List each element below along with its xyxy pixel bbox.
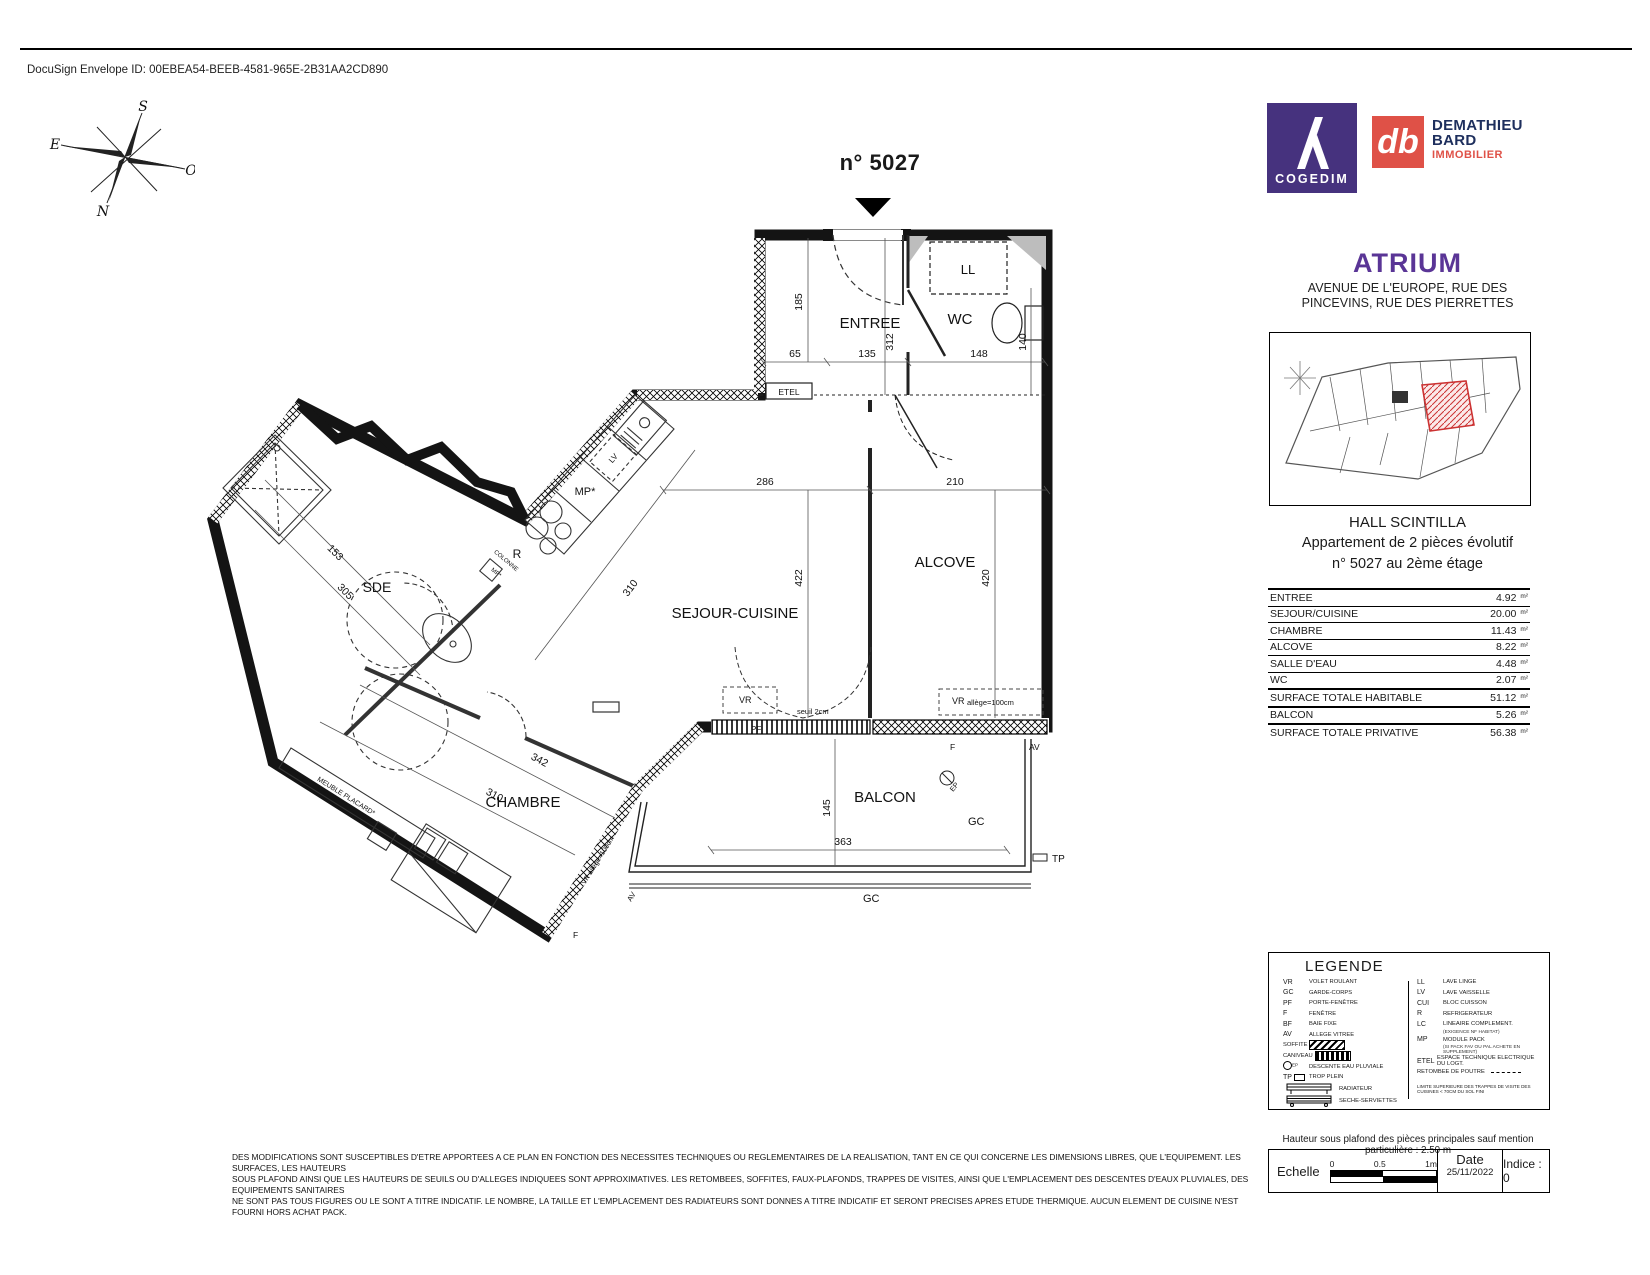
svg-text:allège=100cm: allège=100cm (967, 698, 1014, 707)
svg-text:363: 363 (834, 836, 852, 848)
key-plan (1269, 332, 1531, 506)
table-row-total-habitable: SURFACE TOTALE HABITABLE51.12m² (1268, 688, 1530, 706)
address-line-2: PINCEVINS, RUE DES PIERRETTES (1265, 296, 1550, 311)
echelle-label: Echelle (1277, 1164, 1320, 1179)
compass-o: O (185, 163, 195, 179)
disclaimer-line-2: SOUS PLAFOND AINSI QUE LES HAUTEURS DE S… (232, 1174, 1254, 1196)
room-label-balcon: BALCON (854, 789, 916, 806)
room-label-sde: SDE (363, 579, 392, 595)
echelle-cell: Echelle 0 0.5 1m (1269, 1150, 1438, 1192)
soffite-swatch (1309, 1040, 1345, 1050)
legend-title: LEGENDE (1305, 958, 1549, 975)
room-label-sejour: SEJOUR-CUISINE (672, 605, 799, 622)
svg-text:148: 148 (970, 348, 988, 360)
project-name: ATRIUM (1265, 248, 1550, 279)
svg-text:312: 312 (884, 333, 896, 351)
svg-text:VR: VR (739, 695, 752, 705)
scale-bar: 0 0.5 1m (1330, 1159, 1437, 1183)
table-row: ALCOVE8.22m² (1268, 639, 1530, 656)
plan-number: n° 5027 (795, 150, 965, 176)
demathieu-bard-logo: DEMATHIEU BARD IMMOBILIER (1432, 118, 1523, 163)
svg-text:65: 65 (789, 348, 801, 360)
room-label-entree: ENTREE (840, 315, 901, 332)
keyplan-building (1286, 357, 1520, 479)
address-line-1: AVENUE DE L'EUROPE, RUE DES (1265, 281, 1550, 296)
svg-text:422: 422 (793, 569, 805, 587)
table-row: CHAMBRE11.43m² (1268, 622, 1530, 639)
disclaimer-line-3: NE SONT PAS TOUS FIGURES OU LE SONT A TI… (232, 1196, 1254, 1218)
hall-name: HALL SCINTILLA (1265, 514, 1550, 531)
compass-rose: S E O N (45, 95, 195, 220)
table-row: ENTREE4.92m² (1268, 588, 1530, 606)
svg-text:210: 210 (946, 476, 964, 488)
svg-text:seuil 2cm: seuil 2cm (797, 707, 829, 716)
table-row-total-privative: SURFACE TOTALE PRIVATIVE56.38m² (1268, 723, 1530, 741)
radiateur-symbol (1283, 1083, 1335, 1095)
svg-text:F: F (950, 742, 955, 752)
seche-serviettes-symbol (1283, 1095, 1335, 1107)
table-row: BALCON5.26m² (1268, 706, 1530, 724)
svg-text:AV: AV (625, 890, 638, 903)
docusign-envelope-id: DocuSign Envelope ID: 00EBEA54-BEEB-4581… (27, 64, 388, 76)
surface-table: ENTREE4.92m² SEJOUR/CUISINE20.00m² CHAMB… (1268, 588, 1530, 741)
legend-divider (1408, 981, 1409, 1099)
svg-text:AV: AV (1029, 742, 1040, 752)
entrance-marker-triangle (855, 198, 891, 217)
footer-disclaimer: DES MODIFICATIONS SONT SUSCEPTIBLES D'ET… (232, 1152, 1254, 1218)
svg-text:135: 135 (858, 348, 876, 360)
svg-text:286: 286 (756, 476, 774, 488)
indice-cell: Indice : 0 (1503, 1150, 1549, 1192)
compass-n: N (96, 204, 110, 220)
disclaimer-line-1: DES MODIFICATIONS SONT SUSCEPTIBLES D'ET… (232, 1152, 1254, 1174)
label-etel: ETEL (778, 387, 800, 397)
svg-text:140: 140 (1017, 333, 1029, 351)
svg-text:VR: VR (952, 696, 965, 706)
page-top-border (20, 48, 1632, 50)
legend-right-column: LLLAVE LINGE LVLAVE VAISSELLE CUIBLOC CU… (1407, 977, 1547, 1107)
apartment-desc-2: n° 5027 au 2ème étage (1265, 556, 1550, 572)
document-page: DocuSign Envelope ID: 00EBEA54-BEEB-4581… (0, 0, 1650, 1275)
db-name-1: DEMATHIEU (1432, 118, 1523, 133)
keyplan-compass (1284, 361, 1316, 395)
svg-text:420: 420 (980, 569, 992, 587)
tp-symbol (1294, 1074, 1305, 1081)
legend-box: LEGENDE VRVOLET ROULANT GCGARDE-CORPS PF… (1268, 952, 1550, 1110)
label-ll: LL (961, 262, 975, 277)
date-cell: Date 25/11/2022 (1438, 1150, 1503, 1192)
svg-text:GC: GC (863, 893, 880, 905)
table-row: SALLE D'EAU4.48m² (1268, 655, 1530, 672)
label-r: R (513, 547, 522, 561)
cogedim-name: COGEDIM (1275, 172, 1349, 186)
legend-left-column: VRVOLET ROULANT GCGARDE-CORPS PFPORTE-FE… (1269, 977, 1407, 1107)
compass-e: E (49, 137, 60, 153)
caniveau-swatch (1315, 1051, 1351, 1061)
compass-s: S (138, 99, 148, 115)
floor-plan: ENTREE WC ALCOVE SEJOUR-CUISINE SDE CHAM… (195, 190, 1075, 980)
legend-note: LIMITE SUPERIEURE DES TRAPPES DE VISITE … (1417, 1084, 1537, 1095)
ep-symbol (1283, 1061, 1292, 1070)
label-mp: MP* (575, 486, 597, 498)
apartment-desc-1: Appartement de 2 pièces évolutif (1265, 535, 1550, 551)
svg-text:145: 145 (821, 799, 833, 817)
db-name-3: IMMOBILIER (1432, 148, 1523, 163)
table-row: SEJOUR/CUISINE20.00m² (1268, 606, 1530, 623)
room-label-alcove: ALCOVE (915, 554, 976, 571)
svg-text:F: F (573, 930, 578, 940)
scale-date-box: Echelle 0 0.5 1m Date 25/11/2022 Indice … (1268, 1149, 1550, 1193)
table-row: WC2.07m² (1268, 672, 1530, 689)
cogedim-lambda-icon (1267, 111, 1357, 171)
demathieu-bard-monogram: db (1372, 116, 1424, 168)
balcony (629, 739, 1047, 888)
cogedim-logo: COGEDIM (1267, 103, 1357, 193)
svg-text:EP: EP (949, 781, 961, 793)
svg-text:185: 185 (793, 293, 805, 311)
project-address: AVENUE DE L'EUROPE, RUE DES PINCEVINS, R… (1265, 281, 1550, 311)
svg-text:TP: TP (1052, 854, 1065, 865)
svg-text:GC: GC (968, 816, 985, 828)
room-label-wc: WC (948, 311, 973, 328)
db-name-2: BARD (1432, 133, 1523, 148)
date-label: Date (1438, 1152, 1502, 1167)
retombee-dash-symbol (1491, 1072, 1521, 1073)
keyplan-unit-highlight (1422, 381, 1474, 431)
date-value: 25/11/2022 (1438, 1167, 1502, 1178)
svg-text:PF: PF (751, 725, 761, 734)
